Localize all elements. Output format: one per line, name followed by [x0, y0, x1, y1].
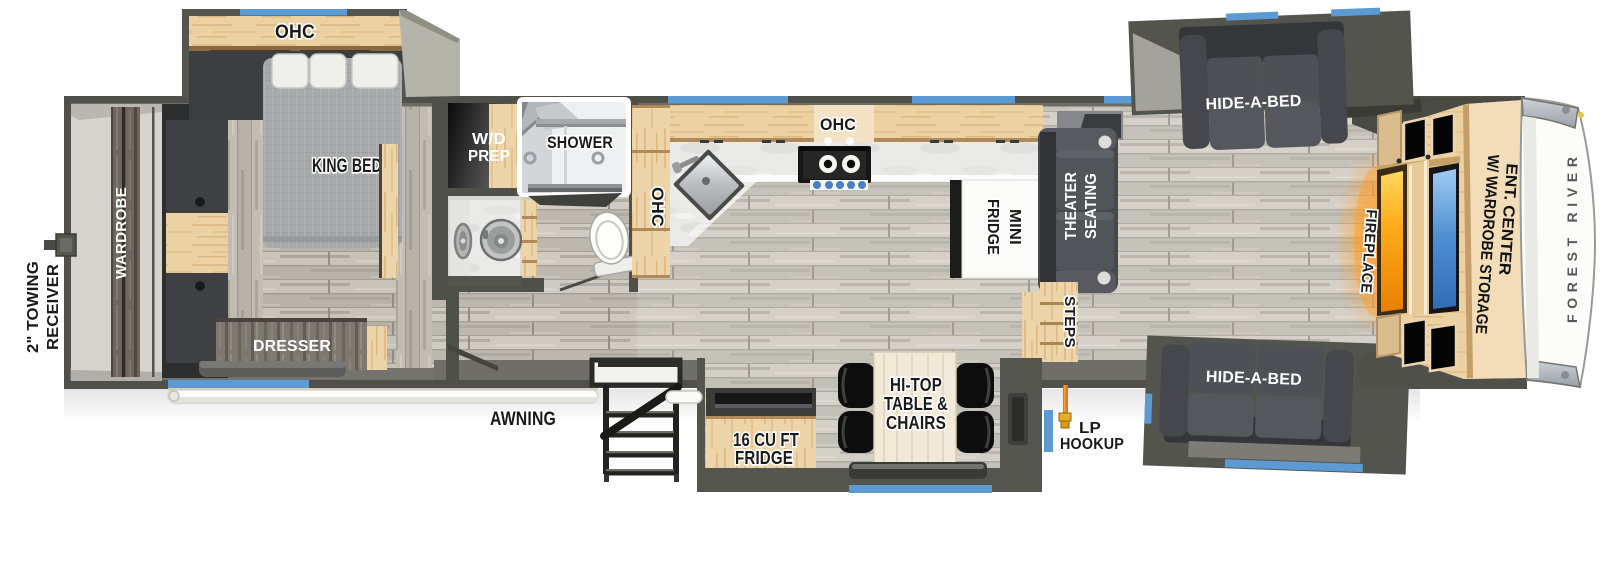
- svg-text:SEATING: SEATING: [1083, 173, 1100, 239]
- svg-text:OHC: OHC: [648, 187, 667, 227]
- svg-text:16 CU FT: 16 CU FT: [733, 430, 799, 450]
- svg-text:HOOKUP: HOOKUP: [1060, 436, 1124, 453]
- svg-text:AWNING: AWNING: [490, 409, 556, 430]
- svg-text:HI-TOP: HI-TOP: [890, 375, 942, 395]
- svg-text:LP: LP: [1079, 420, 1101, 437]
- svg-text:THEATER: THEATER: [1063, 172, 1080, 240]
- svg-text:STEPS: STEPS: [1061, 296, 1078, 348]
- svg-text:CHAIRS: CHAIRS: [886, 413, 946, 433]
- svg-text:OHC: OHC: [820, 116, 856, 134]
- svg-text:2" TOWING: 2" TOWING: [25, 261, 42, 353]
- svg-text:KING BED: KING BED: [312, 156, 382, 177]
- svg-text:RECEIVER: RECEIVER: [45, 264, 62, 350]
- svg-text:MINI: MINI: [1006, 209, 1023, 245]
- svg-text:PREP: PREP: [468, 148, 510, 165]
- svg-text:SHOWER: SHOWER: [547, 134, 613, 152]
- svg-text:DRESSER: DRESSER: [253, 338, 331, 355]
- svg-text:TABLE &: TABLE &: [884, 394, 948, 414]
- svg-text:WARDROBE: WARDROBE: [113, 187, 130, 279]
- svg-text:FRIDGE: FRIDGE: [735, 448, 793, 468]
- svg-text:FOREST RIVER: FOREST RIVER: [1564, 155, 1580, 323]
- svg-text:W/D: W/D: [472, 131, 506, 148]
- svg-text:FRIDGE: FRIDGE: [984, 199, 1001, 255]
- svg-text:OHC: OHC: [275, 22, 315, 43]
- svg-text:HIDE-A-BED: HIDE-A-BED: [1206, 369, 1303, 389]
